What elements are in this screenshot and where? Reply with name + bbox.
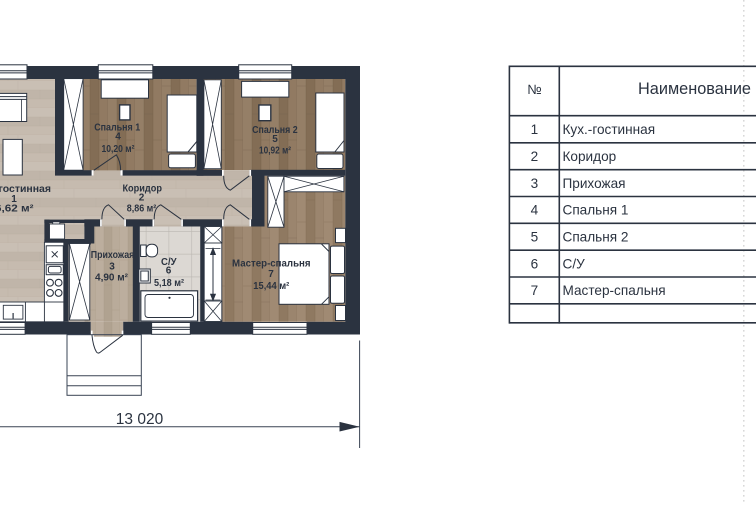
svg-text:2: 2 [531, 149, 539, 164]
svg-text:Спальня 1: Спальня 1 [563, 203, 629, 218]
svg-text:7: 7 [268, 269, 274, 280]
svg-text:10,92 м²: 10,92 м² [259, 146, 292, 157]
svg-text:Прихожая: Прихожая [563, 176, 626, 191]
svg-text:2: 2 [139, 193, 145, 204]
svg-text:Наименование: Наименование [638, 80, 751, 98]
svg-text:6: 6 [531, 256, 539, 271]
svg-text:Кух.-гостинная: Кух.-гостинная [563, 122, 656, 137]
svg-text:7: 7 [531, 283, 539, 298]
svg-text:4: 4 [115, 131, 121, 142]
svg-text:26,62 м²: 26,62 м² [0, 204, 34, 215]
svg-text:5: 5 [531, 229, 539, 244]
svg-text:С/У: С/У [563, 256, 586, 271]
svg-text:6: 6 [166, 266, 172, 277]
svg-text:Спальня 2: Спальня 2 [563, 229, 629, 244]
svg-text:4: 4 [531, 203, 539, 218]
svg-text:5,18 м²: 5,18 м² [154, 278, 185, 289]
svg-text:№: № [527, 82, 541, 97]
svg-text:15,44 м²: 15,44 м² [253, 281, 290, 292]
svg-text:13 020: 13 020 [116, 411, 164, 428]
svg-text:5: 5 [272, 134, 278, 145]
svg-text:1: 1 [531, 122, 539, 137]
svg-text:10,20 м²: 10,20 м² [102, 144, 136, 155]
svg-text:3: 3 [109, 262, 115, 273]
svg-text:3: 3 [531, 176, 539, 191]
svg-text:Коридор: Коридор [563, 149, 617, 164]
svg-text:Кух.-гостинная: Кух.-гостинная [0, 184, 51, 195]
svg-text:Прихожая: Прихожая [91, 250, 135, 261]
svg-text:4,90 м²: 4,90 м² [95, 273, 129, 284]
svg-text:Мастер-спальня: Мастер-спальня [232, 259, 311, 270]
svg-text:8,86 м²: 8,86 м² [127, 204, 157, 215]
svg-text:Мастер-спальня: Мастер-спальня [563, 283, 666, 298]
